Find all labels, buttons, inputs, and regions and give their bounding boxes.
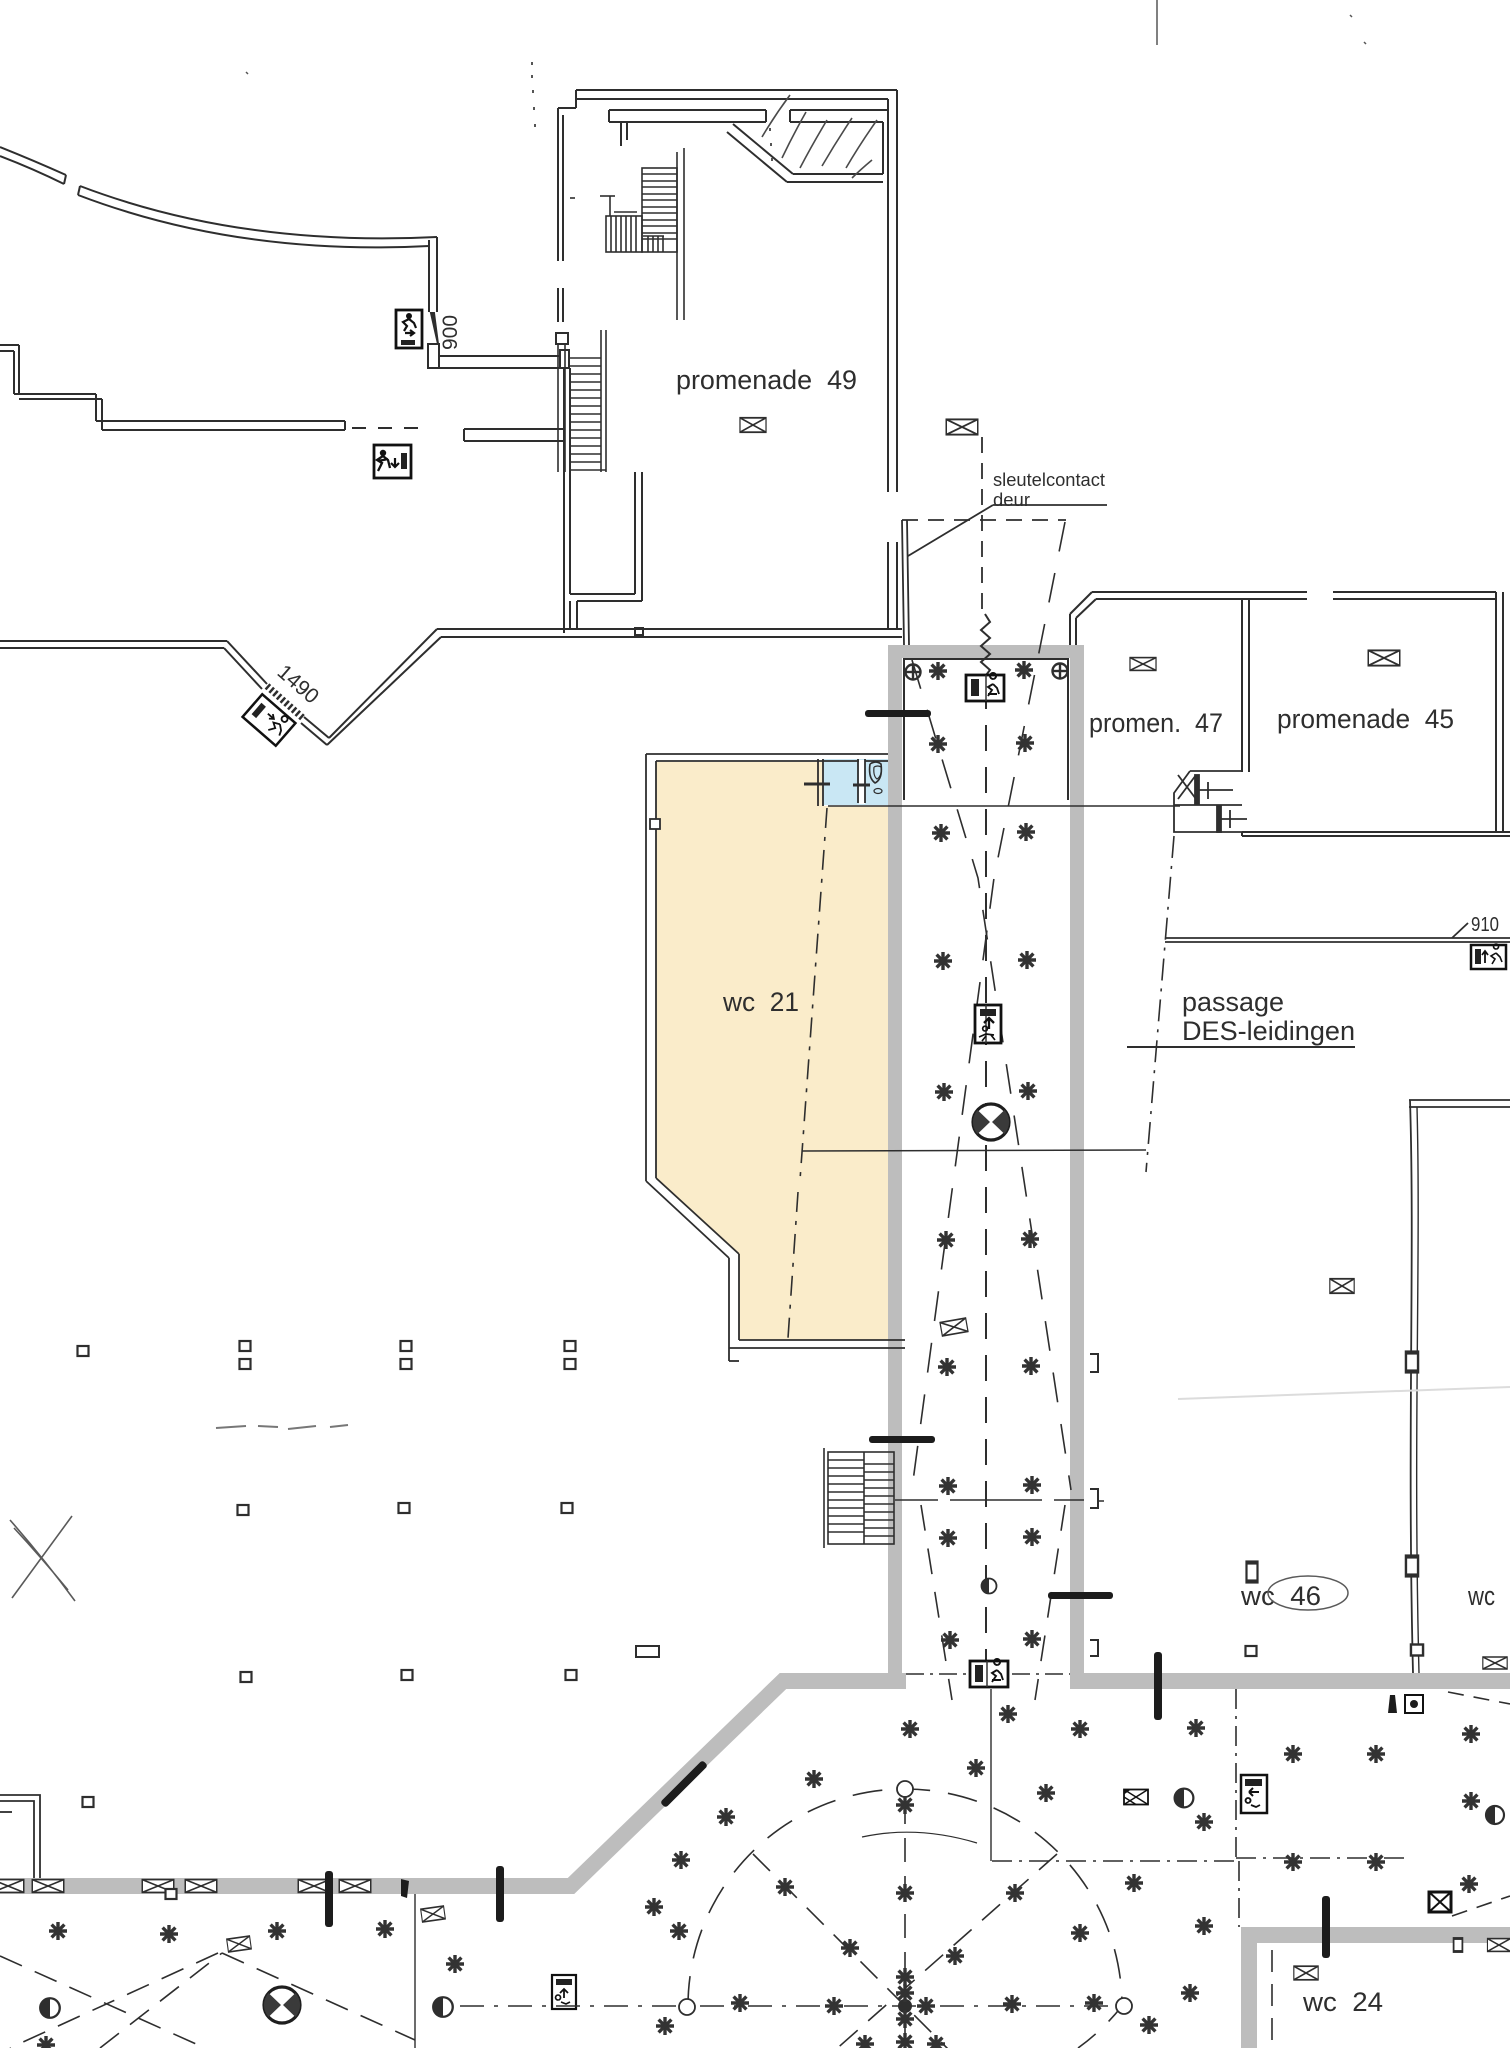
svg-text:wc 21: wc 21 xyxy=(722,987,799,1017)
svg-text:910: 910 xyxy=(1471,914,1499,936)
svg-text:wc: wc xyxy=(1467,1581,1495,1611)
svg-text:DES-leidingen: DES-leidingen xyxy=(1182,1016,1355,1046)
svg-text:deur: deur xyxy=(993,490,1030,510)
svg-text:promen. 47: promen. 47 xyxy=(1089,708,1223,738)
svg-text:sleutelcontact: sleutelcontact xyxy=(993,470,1105,490)
svg-text:900: 900 xyxy=(439,315,462,350)
svg-text:promenade 45: promenade 45 xyxy=(1277,704,1454,734)
svg-text:passage: passage xyxy=(1182,987,1284,1017)
svg-text:wc 46: wc 46 xyxy=(1240,1581,1321,1611)
svg-text:promenade 49: promenade 49 xyxy=(676,365,857,395)
svg-text:wc 24: wc 24 xyxy=(1302,1987,1383,2017)
